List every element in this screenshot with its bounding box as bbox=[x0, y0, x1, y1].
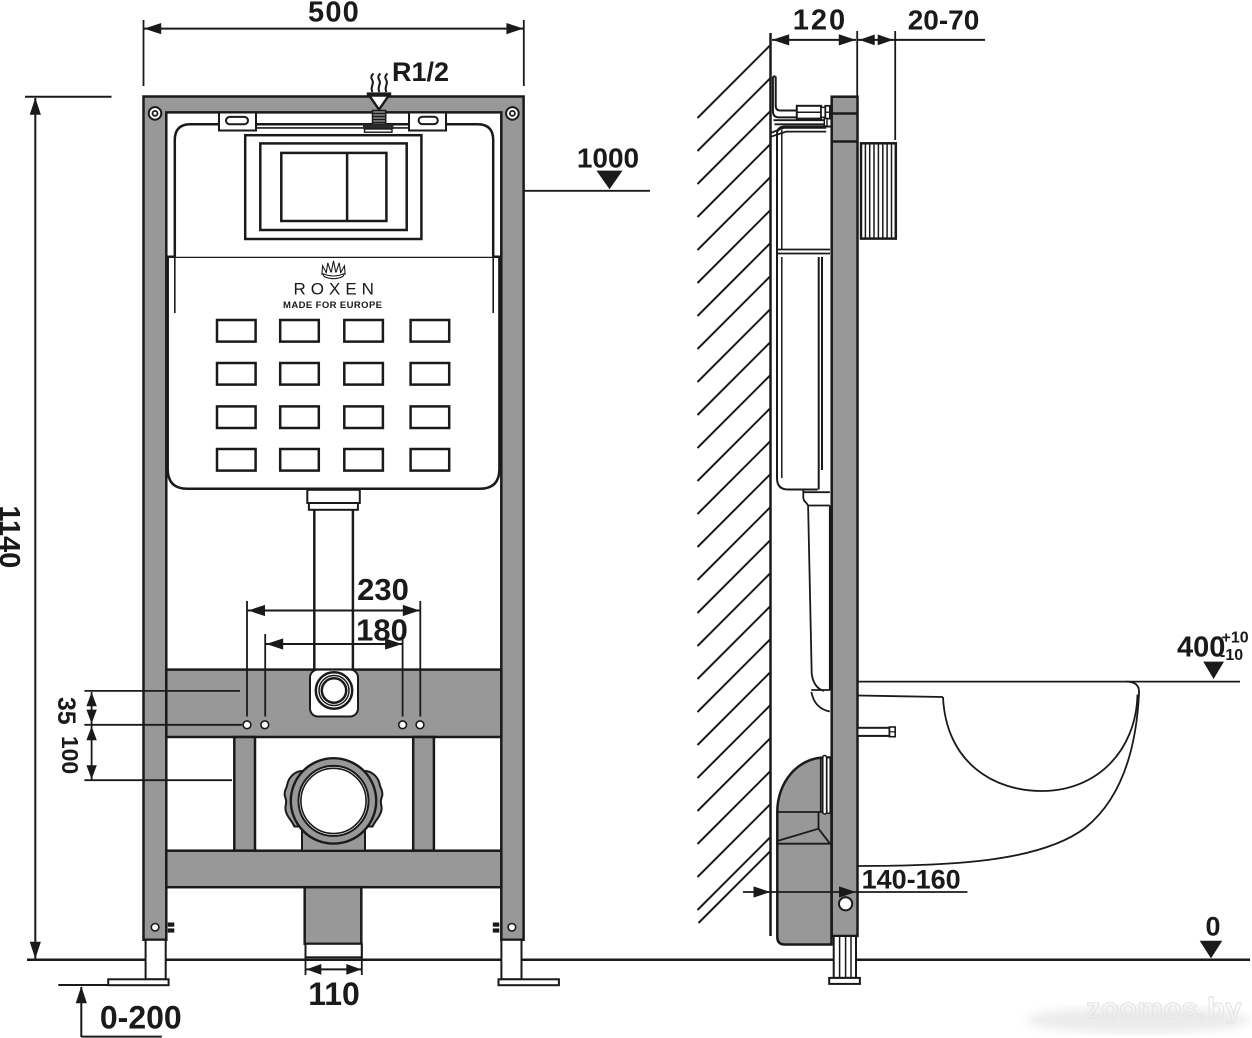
svg-text:230: 230 bbox=[357, 572, 409, 607]
svg-text:20-70: 20-70 bbox=[908, 5, 980, 36]
svg-text:500: 500 bbox=[308, 0, 360, 28]
svg-text:100: 100 bbox=[57, 736, 83, 774]
svg-text:1140: 1140 bbox=[0, 505, 25, 568]
svg-text:0: 0 bbox=[1205, 912, 1220, 942]
svg-text:ROXEN: ROXEN bbox=[294, 279, 379, 298]
svg-text:110: 110 bbox=[308, 976, 360, 1012]
svg-text:180: 180 bbox=[356, 613, 408, 648]
svg-text:0-200: 0-200 bbox=[100, 999, 182, 1035]
svg-text:zoomos.by: zoomos.by bbox=[1086, 993, 1242, 1025]
svg-text:120: 120 bbox=[793, 5, 847, 37]
svg-text:+10: +10 bbox=[1222, 630, 1249, 647]
svg-text:-10: -10 bbox=[1220, 647, 1243, 664]
svg-text:R1/2: R1/2 bbox=[392, 57, 449, 87]
svg-text:1000: 1000 bbox=[577, 142, 639, 173]
svg-text:140-160: 140-160 bbox=[862, 865, 961, 895]
svg-text:MADE FOR EUROPE: MADE FOR EUROPE bbox=[283, 300, 382, 311]
svg-text:35: 35 bbox=[52, 697, 80, 725]
svg-text:400: 400 bbox=[1177, 631, 1225, 663]
